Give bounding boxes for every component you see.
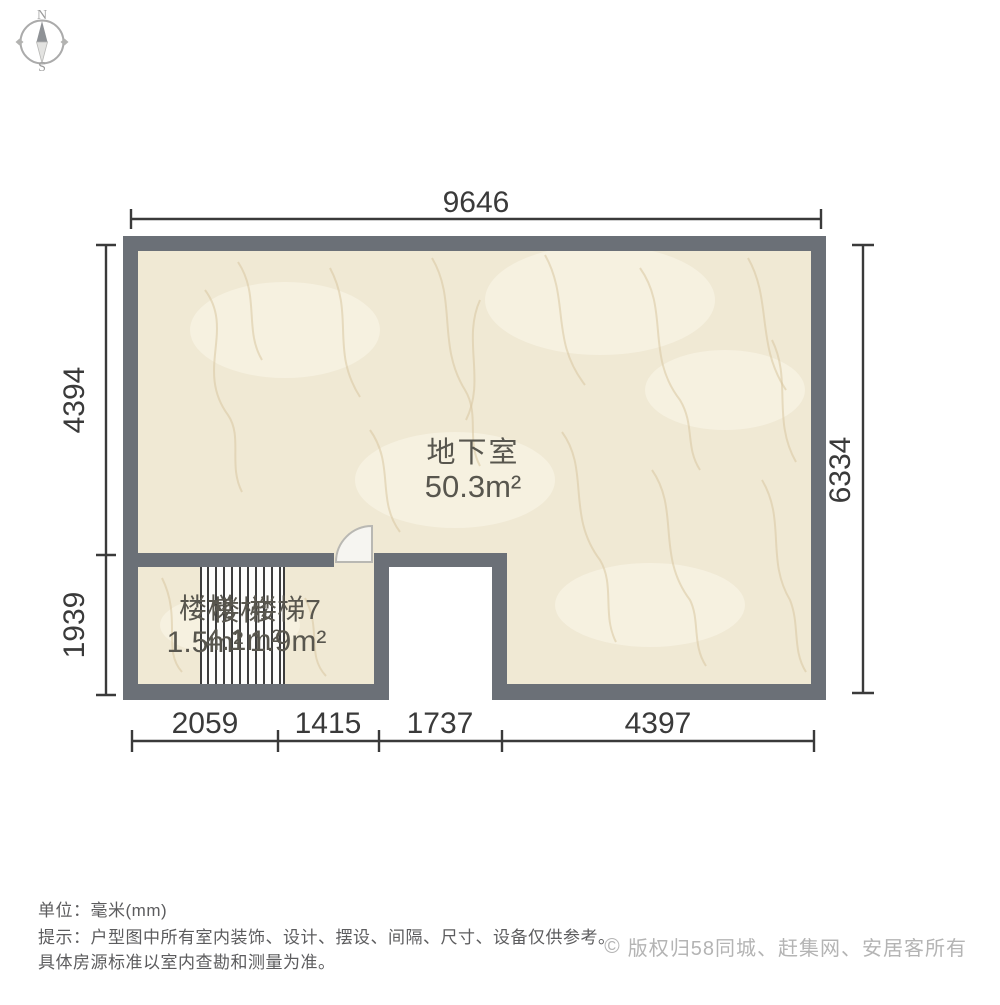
stair-room-top-wall	[123, 553, 334, 567]
compass-east-tick-icon	[61, 39, 69, 46]
compass-west-tick-icon	[16, 39, 24, 46]
notch-top-wall	[374, 553, 507, 567]
notch-left-wall	[374, 553, 389, 700]
lightwell-notch	[389, 567, 492, 702]
unit-note: 单位：毫米(mm)	[38, 896, 167, 921]
dim-bottom-label-4: 4397	[625, 707, 692, 740]
room-area-label: 50.3m²	[425, 469, 521, 504]
copyright-notice: © 版权归58同城、赶集网、安居客所有	[604, 932, 967, 961]
dim-bottom-label-2: 1415	[295, 707, 362, 740]
disclaimer-line-2: 具体房源标准以室内查勘和测量为准。	[38, 948, 336, 973]
stair-label-3-area: 1.9m²	[250, 625, 327, 658]
dim-right-label: 6334	[824, 437, 857, 504]
copyright-text: 版权归58同城、赶集网、安居客所有	[628, 932, 967, 961]
dim-left-upper-label: 4394	[58, 367, 91, 434]
disclaimer-line-1: 提示：户型图中所有室内装饰、设计、摆设、间隔、尺寸、设备仅供参考。	[38, 923, 616, 948]
dim-line-left	[96, 245, 116, 695]
dim-top-label: 9646	[443, 186, 510, 219]
compass-south-label: S	[38, 60, 46, 75]
compass-north-label: N	[37, 8, 47, 23]
compass: N S	[16, 8, 69, 75]
copyright-icon: ©	[604, 936, 620, 957]
floorplan-image: N S	[0, 0, 1000, 1000]
dim-bottom-label-1: 2059	[172, 707, 239, 740]
stair-labels: 楼梯 1.5m² 楼梯 4.1m² 楼梯7 1.9m²	[167, 593, 327, 659]
stair-label-3-name: 楼梯7	[249, 594, 321, 625]
dim-bottom-label-3: 1737	[407, 707, 474, 740]
floorplan-svg: N S	[0, 0, 1000, 1000]
compass-needle-north-icon	[37, 21, 48, 42]
dim-left-lower-label: 1939	[58, 592, 91, 659]
notch-right-wall	[492, 553, 507, 700]
room-name-label: 地下室	[426, 436, 519, 469]
